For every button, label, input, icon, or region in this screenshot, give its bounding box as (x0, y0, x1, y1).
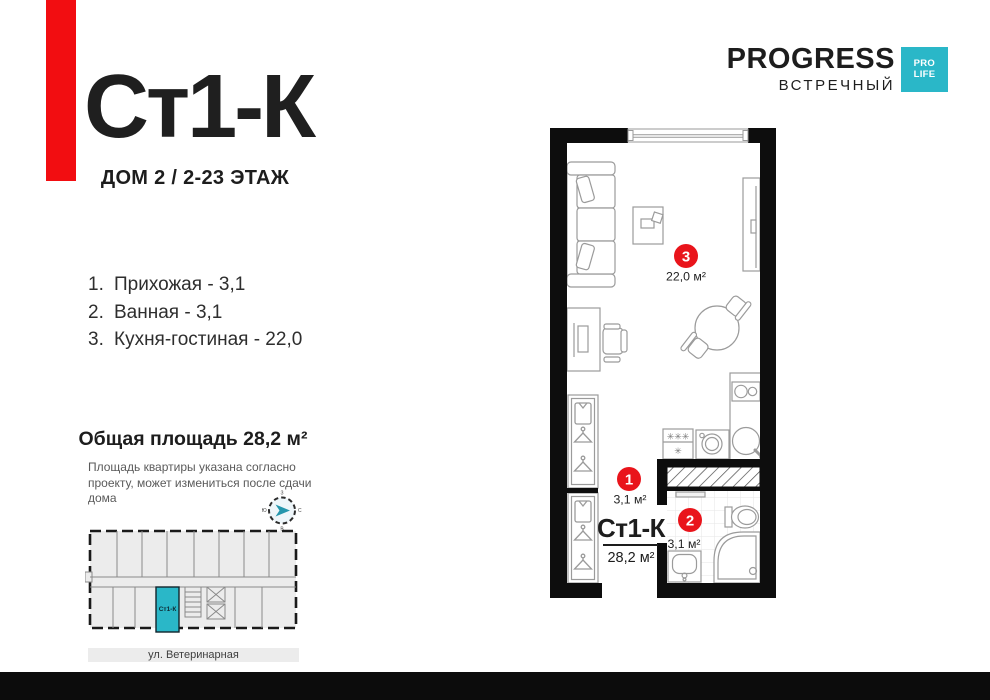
room-list-item: 1. Прихожая - 3,1 (88, 271, 302, 299)
floor-plan: ✳✳✳ ✳ 1 (545, 120, 790, 605)
room-marker-1-number: 1 (625, 471, 633, 488)
desk-icon (567, 308, 600, 371)
tv-unit-icon (743, 178, 760, 271)
bath-area-label: 3,1 м² (667, 537, 700, 551)
compass-north: С (298, 508, 302, 514)
highlighted-unit-label: Ст1-К (159, 606, 177, 613)
sofa-icon (567, 162, 615, 287)
room-label: Кухня-гостиная - 22,0 (114, 326, 302, 354)
room-label: Ванная - 3,1 (114, 299, 222, 327)
wardrobe-icon (568, 493, 598, 583)
kitchen-area-label: 22,0 м² (666, 270, 706, 284)
room-marker-2-number: 2 (686, 512, 694, 529)
street-name: ул. Ветеринарная (148, 649, 239, 661)
total-area-heading: Общая площадь 28,2 м² (78, 429, 308, 449)
duct-hatch (667, 467, 760, 487)
room-list-item: 2. Ванная - 3,1 (88, 299, 302, 327)
hall-area-label: 3,1 м² (613, 493, 646, 507)
unit-area-label: 28,2 м² (607, 550, 654, 566)
brand-project-name: ВСТРЕЧНЫЙ (600, 77, 895, 94)
room-number: 3. (88, 326, 114, 354)
mini-building-plan: Ст1-К (85, 524, 305, 642)
desk-chair-icon (603, 324, 627, 362)
street-label: ул. Ветеринарная (88, 648, 299, 662)
toilet-icon (725, 506, 759, 528)
compass-west: З (280, 491, 283, 497)
page-title: Ст1-К (84, 53, 313, 161)
stairs-icon (185, 587, 201, 617)
shower-icon (714, 532, 760, 583)
window-icon (628, 129, 748, 142)
room-label: Прихожая - 3,1 (114, 271, 245, 299)
page-subtitle: ДОМ 2 / 2-23 ЭТАЖ (84, 167, 306, 190)
red-accent-bar (46, 0, 76, 181)
room-list-item: 3. Кухня-гостиная - 22,0 (88, 326, 302, 354)
page: Ст1-К ДОМ 2 / 2-23 ЭТАЖ PROGRESS ВСТРЕЧН… (0, 0, 990, 700)
svg-text:✳: ✳ (674, 446, 682, 456)
badge-line2: LIFE (914, 70, 936, 81)
bathroom-sink-icon (668, 551, 701, 582)
brand-name: PROGRESS (600, 44, 895, 74)
bathroom-door-leaf (676, 492, 705, 497)
svg-text:✳✳✳: ✳✳✳ (667, 432, 690, 442)
unit-name-label: Ст1-К (597, 513, 666, 543)
dining-table-icon (680, 292, 752, 362)
room-number: 2. (88, 299, 114, 327)
room-marker-3-number: 3 (682, 248, 690, 265)
badge-line1: PRO (914, 59, 936, 70)
brand-logo: PROGRESS ВСТРЕЧНЫЙ (600, 44, 895, 94)
bottom-black-bar (0, 672, 990, 700)
room-list: 1. Прихожая - 3,1 2. Ванная - 3,1 3. Кух… (88, 271, 302, 354)
compass-south: Ю (262, 508, 267, 514)
wardrobe-icon (568, 395, 598, 488)
washing-machine-icon (696, 430, 729, 459)
media-table-icon (633, 207, 663, 244)
room-number: 1. (88, 271, 114, 299)
pro-life-badge: PRO LIFE (901, 47, 948, 92)
